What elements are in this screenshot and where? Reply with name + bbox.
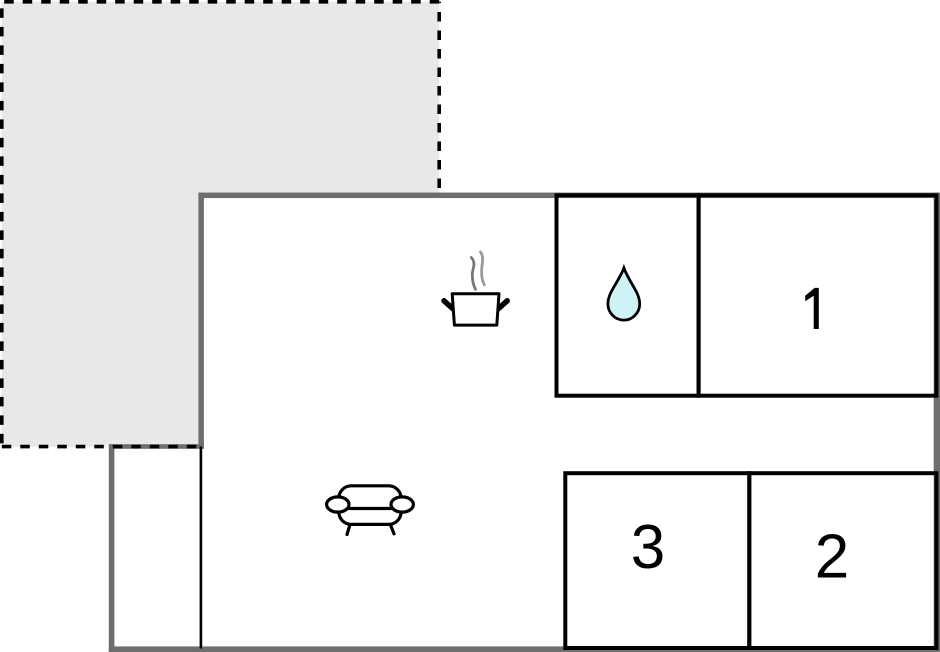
svg-text:3: 3 — [631, 513, 665, 582]
svg-text:2: 2 — [815, 523, 849, 592]
